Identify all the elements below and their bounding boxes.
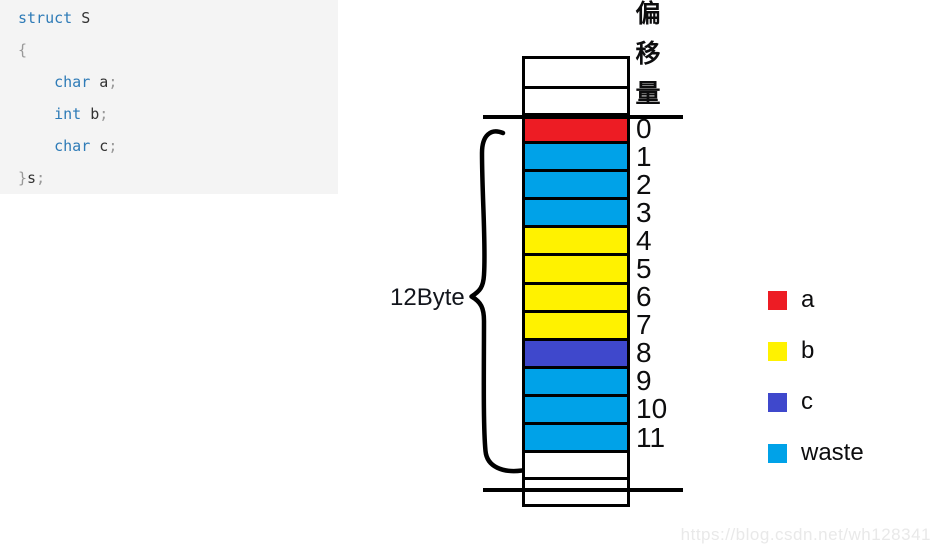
code-line: char a; [18, 66, 338, 98]
offset-number: 4 [636, 227, 652, 255]
offset-number: 5 [636, 255, 652, 283]
struct-start-line [483, 115, 683, 119]
legend-label: c [801, 390, 813, 414]
legend-swatch-icon [768, 291, 787, 310]
memory-cell-offset-8: 8 [525, 338, 627, 366]
memory-cell-offset-1: 1 [525, 141, 627, 169]
memory-cell-offset-4: 4 [525, 225, 627, 253]
memory-cell-empty [525, 86, 627, 113]
legend-swatch-icon [768, 444, 787, 463]
offset-header-char: 偏 [630, 2, 666, 27]
memory-cell-offset-2: 2 [525, 169, 627, 197]
code-block: struct S{ char a; int b; char c;}s; [0, 0, 338, 194]
offset-number: 2 [636, 171, 652, 199]
offset-header: 偏移量 [630, 2, 666, 107]
legend-swatch-icon [768, 342, 787, 361]
curly-brace-icon [455, 125, 530, 487]
struct-alignment-diagram: struct S{ char a; int b; char c;}s; 偏移量 … [0, 0, 936, 554]
memory-cell-empty [525, 450, 627, 477]
memory-cell-offset-7: 7 [525, 310, 627, 338]
offset-number: 7 [636, 311, 652, 339]
watermark: https://blog.csdn.net/wh128341 [681, 525, 931, 545]
legend: abcwaste [768, 288, 864, 465]
legend-item-c: c [768, 390, 864, 414]
legend-label: a [801, 288, 814, 312]
memory-cell-offset-3: 3 [525, 197, 627, 225]
legend-item-waste: waste [768, 441, 864, 465]
memory-cell-offset-5: 5 [525, 253, 627, 281]
offset-number: 1 [636, 143, 652, 171]
offset-header-char: 移 [630, 42, 666, 67]
legend-item-b: b [768, 339, 864, 363]
offset-number: 11 [636, 424, 665, 452]
offset-number: 8 [636, 339, 652, 367]
legend-swatch-icon [768, 393, 787, 412]
memory-column: 01234567891011 [522, 56, 630, 507]
offset-number: 6 [636, 283, 652, 311]
memory-cell-offset-11: 11 [525, 422, 627, 450]
offset-number: 9 [636, 367, 652, 395]
offset-number: 10 [636, 395, 667, 423]
memory-cell-offset-9: 9 [525, 366, 627, 394]
offset-number: 3 [636, 199, 652, 227]
legend-item-a: a [768, 288, 864, 312]
offset-header-char: 量 [630, 82, 666, 107]
code-line: char c; [18, 130, 338, 162]
memory-cell-empty [525, 59, 627, 86]
code-line: { [18, 34, 338, 66]
code-line: int b; [18, 98, 338, 130]
struct-end-line [483, 488, 683, 492]
code-line: }s; [18, 162, 338, 194]
size-label: 12Byte [390, 284, 465, 312]
memory-cell-offset-6: 6 [525, 282, 627, 310]
code-line: struct S [18, 2, 338, 34]
legend-label: waste [801, 441, 864, 465]
legend-label: b [801, 339, 814, 363]
memory-cell-offset-10: 10 [525, 394, 627, 422]
